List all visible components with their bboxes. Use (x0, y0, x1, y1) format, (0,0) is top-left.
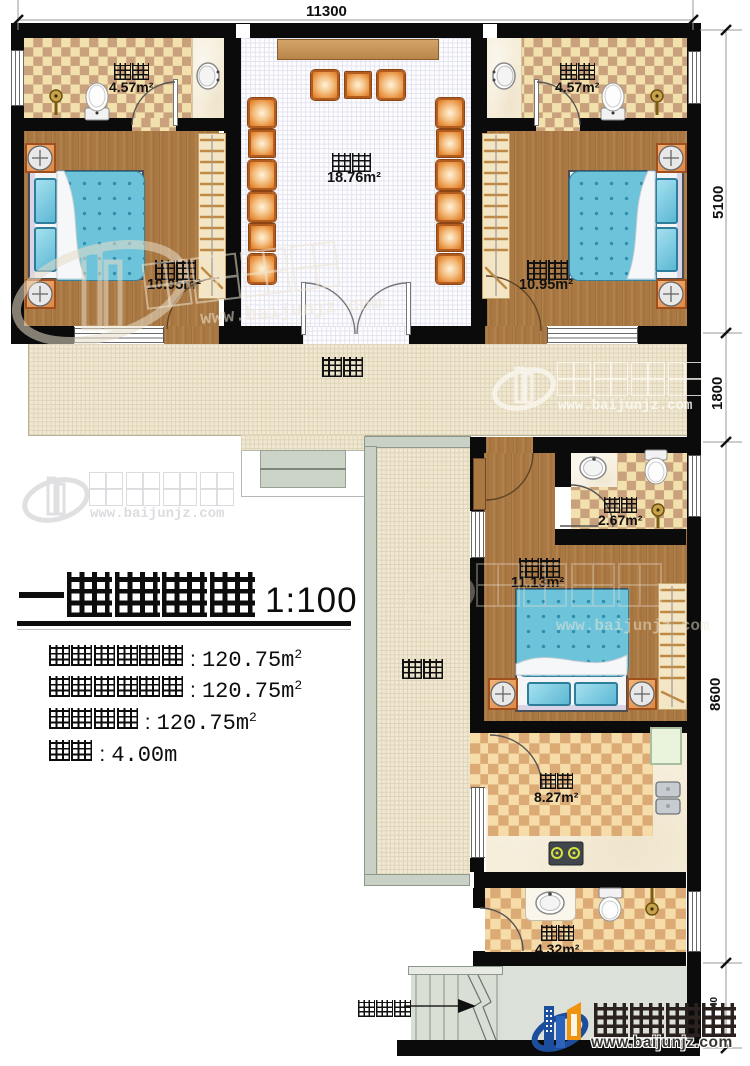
svg-text:5100: 5100 (710, 186, 727, 219)
svg-text:1800: 1800 (709, 377, 726, 410)
svg-text:8600: 8600 (707, 678, 724, 711)
